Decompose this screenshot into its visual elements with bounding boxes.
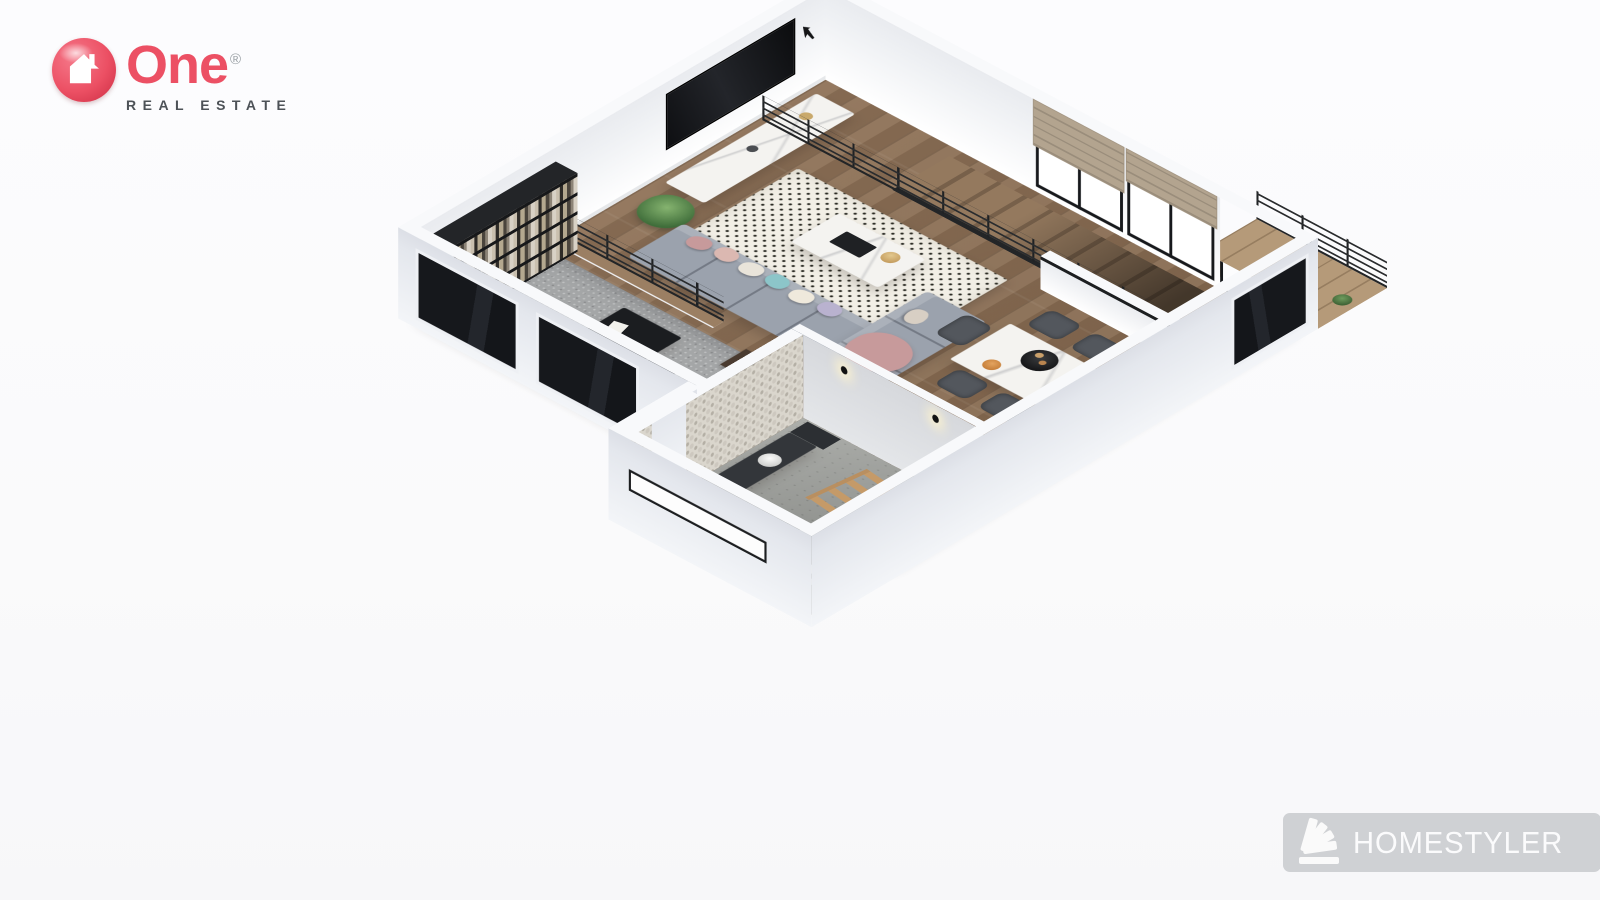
agency-logo: One® REAL ESTATE (52, 38, 292, 112)
house-arrow-shape (62, 48, 106, 92)
house-arrow-circle-icon (52, 38, 116, 102)
wall-lamp (841, 365, 848, 376)
agency-tagline: REAL ESTATE (126, 98, 292, 112)
wall-lamp (932, 413, 939, 424)
agency-name: One® (126, 38, 292, 92)
registered-mark: ® (230, 51, 240, 68)
homestyler-watermark-label: HOMESTYLER (1353, 825, 1563, 861)
apartment-plan (302, 67, 1318, 637)
homestyler-fan-icon (1297, 822, 1343, 864)
wall-decal-arrow (803, 20, 815, 45)
floorplan-render-canvas: One® REAL ESTATE (0, 0, 1600, 900)
agency-logo-text: One® REAL ESTATE (126, 38, 292, 112)
homestyler-watermark: HOMESTYLER (1283, 813, 1600, 872)
